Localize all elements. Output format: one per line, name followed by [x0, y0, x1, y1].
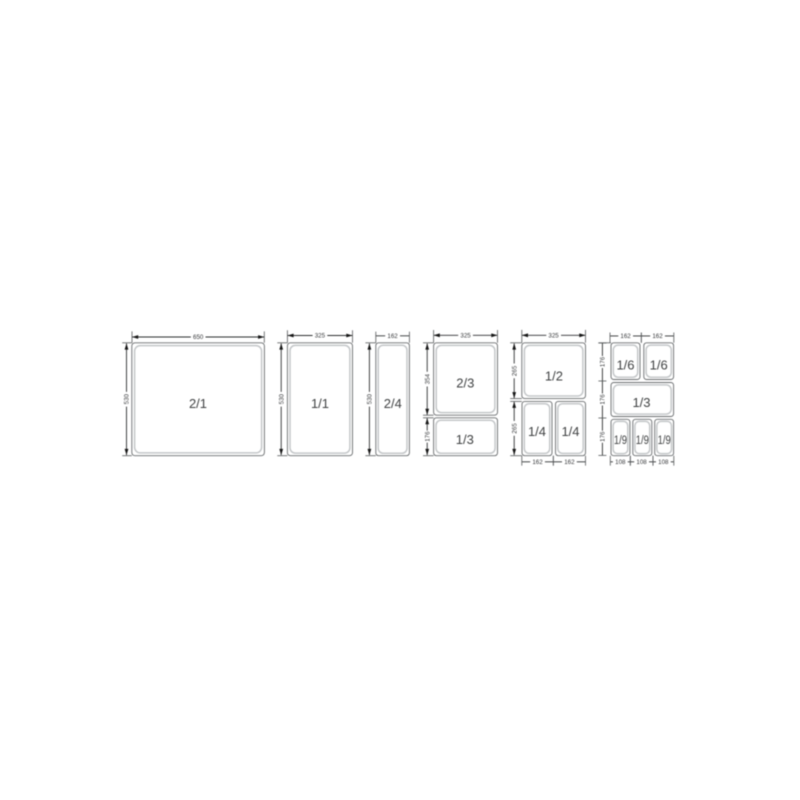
svg-text:1/3: 1/3 — [632, 395, 650, 410]
svg-text:176: 176 — [600, 356, 607, 367]
svg-text:176: 176 — [424, 431, 431, 442]
svg-text:1/4: 1/4 — [561, 424, 579, 439]
svg-text:176: 176 — [600, 394, 607, 405]
svg-text:1/9: 1/9 — [614, 435, 627, 447]
svg-text:530: 530 — [278, 393, 285, 404]
svg-text:2/4: 2/4 — [384, 396, 402, 411]
svg-text:1/3: 1/3 — [456, 432, 474, 447]
svg-text:530: 530 — [124, 393, 131, 404]
svg-text:162: 162 — [620, 333, 631, 340]
svg-text:162: 162 — [564, 459, 575, 466]
svg-text:108: 108 — [658, 459, 669, 466]
svg-text:2/3: 2/3 — [456, 376, 474, 391]
svg-text:325: 325 — [548, 333, 559, 340]
svg-text:176: 176 — [600, 431, 607, 442]
svg-text:162: 162 — [387, 333, 398, 340]
svg-text:650: 650 — [193, 334, 204, 341]
svg-text:162: 162 — [652, 333, 663, 340]
svg-text:2/1: 2/1 — [189, 396, 207, 411]
svg-text:265: 265 — [511, 365, 518, 376]
svg-text:162: 162 — [532, 459, 543, 466]
svg-text:1/6: 1/6 — [650, 357, 668, 372]
svg-text:108: 108 — [636, 459, 647, 466]
svg-text:325: 325 — [460, 333, 471, 340]
svg-text:354: 354 — [424, 373, 431, 384]
svg-text:265: 265 — [511, 423, 518, 434]
svg-text:325: 325 — [315, 333, 326, 340]
svg-text:1/6: 1/6 — [616, 357, 634, 372]
svg-text:1/9: 1/9 — [658, 435, 671, 447]
svg-text:1/4: 1/4 — [528, 424, 546, 439]
svg-text:1/9: 1/9 — [636, 435, 649, 447]
svg-text:108: 108 — [615, 459, 626, 466]
svg-text:1/1: 1/1 — [311, 396, 329, 411]
svg-text:1/2: 1/2 — [545, 368, 563, 383]
svg-text:530: 530 — [367, 393, 374, 404]
